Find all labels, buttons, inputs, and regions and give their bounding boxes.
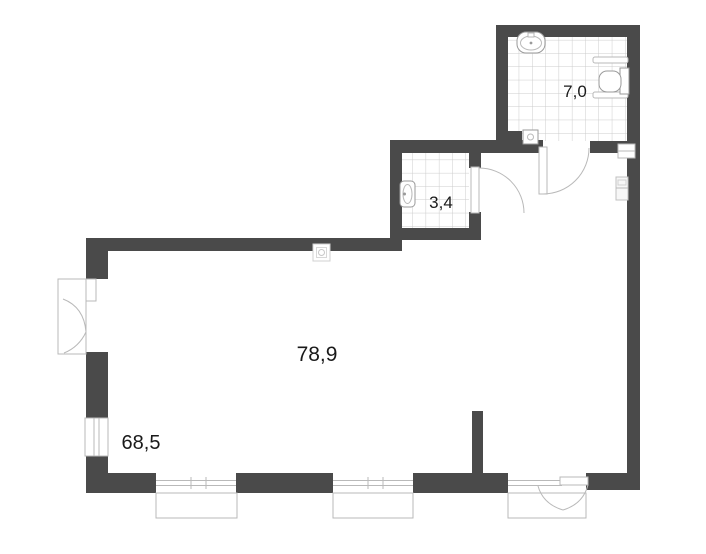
wall-segment <box>586 473 640 490</box>
floor-plan: 78,9 68,5 7,0 3,4 <box>0 0 706 554</box>
wall-segment <box>390 228 481 240</box>
wall-segment <box>413 473 508 493</box>
balcony-door-unit <box>508 477 588 518</box>
door-jamb <box>86 279 96 301</box>
sink-drain-dot <box>403 193 406 196</box>
electrical-panel-icon <box>616 177 628 200</box>
bottom-window-1 <box>156 477 237 518</box>
balcony-box <box>156 493 237 518</box>
door-leaf <box>471 167 479 213</box>
wall-segment <box>496 25 508 147</box>
room-label-lower-left: 68,5 <box>122 432 161 454</box>
sink-faucet <box>528 33 534 37</box>
duct-shaft-icon <box>618 144 635 158</box>
grab-bar-icon <box>593 57 628 63</box>
room-label-bathroom-top-right: 7,0 <box>563 82 587 101</box>
window-frame <box>85 418 108 456</box>
wall-segment <box>86 238 108 279</box>
bottom-window-2 <box>333 477 413 518</box>
floor-plan-drawing: 78,9 68,5 7,0 3,4 <box>0 0 706 554</box>
balcony-box <box>508 493 586 518</box>
toilet-bowl <box>599 71 621 92</box>
wall-segment <box>236 473 333 493</box>
wall-segment <box>469 212 481 240</box>
left-window <box>85 418 108 456</box>
door-leaf <box>539 147 547 194</box>
wall-segment <box>86 473 156 493</box>
bathroom-top-right-door <box>539 147 589 194</box>
sink-drain-dot <box>530 42 533 45</box>
outlet-plate <box>313 244 330 261</box>
wall-segment <box>627 25 640 490</box>
sink-icon <box>400 181 415 207</box>
interior-wall-stub <box>472 411 483 473</box>
drain-hole <box>528 134 534 140</box>
balcony-box <box>333 493 413 518</box>
wall-pier <box>506 131 522 144</box>
bathroom-middle-fixtures <box>400 181 415 207</box>
balcony-door-leaf <box>560 477 588 485</box>
bathroom-middle-door <box>471 167 524 213</box>
entrance-door <box>58 279 96 354</box>
outlet-icon <box>313 244 330 261</box>
door-swing-arc <box>479 168 524 213</box>
wall-segment <box>87 238 402 251</box>
sink-icon <box>517 32 545 53</box>
wall-segment <box>469 140 481 168</box>
room-label-bathroom-middle: 3,4 <box>429 193 453 212</box>
wall-segment <box>496 25 640 37</box>
door-swing-arc <box>543 148 589 194</box>
floor-drain-icon <box>523 130 538 144</box>
room-label-main: 78,9 <box>297 343 338 366</box>
wall-segment <box>86 352 108 418</box>
